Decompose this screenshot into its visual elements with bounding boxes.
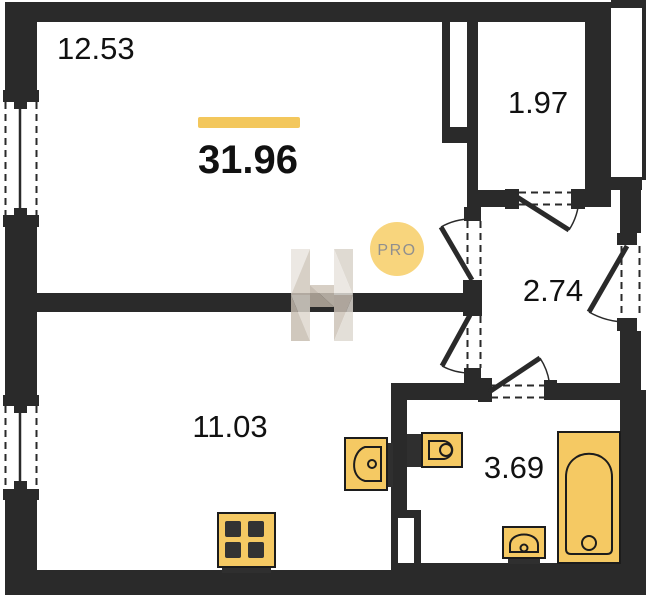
wall-top [5, 2, 611, 22]
wall-entrance-top [620, 187, 641, 233]
stove-burner [225, 542, 241, 558]
window-sill [3, 215, 39, 227]
toilet-icon [407, 433, 462, 467]
total-area-label: 31.96 [198, 138, 298, 182]
wall-corner-shaft-right [414, 518, 421, 568]
stove-icon [218, 513, 275, 573]
stove-burner [248, 542, 264, 558]
wall-shaft-cap [442, 127, 478, 143]
wall-top-edge-strip [611, 0, 646, 8]
wall-shaft-right [467, 22, 478, 207]
wall-corner-shaft-cap [391, 510, 421, 518]
labels: 12.53 31.96 1.97 2.74 11.03 3.69 [57, 31, 583, 485]
wall-left-pier-bottom [5, 500, 37, 595]
door-leaf [442, 315, 470, 366]
wall-bottom-kitchen [37, 570, 391, 595]
toilet-tank [407, 434, 422, 467]
bathtub-body [558, 432, 620, 563]
wall-bath-top-left [406, 383, 489, 400]
total-area-accent-bar [198, 117, 300, 128]
room-area-label-bathroom: 3.69 [484, 450, 544, 485]
wall-corner-shaft-left [391, 518, 398, 568]
wall-closet-right [585, 2, 611, 190]
room-area-label-closet: 1.97 [508, 85, 568, 120]
door-leaf [517, 197, 569, 230]
stove-burner [225, 521, 241, 537]
wall-left-pier-top [5, 2, 37, 92]
wall-bottom-bathroom [391, 563, 646, 595]
door-jamb [617, 233, 637, 245]
washbasin-icon [503, 527, 545, 564]
floor-plan-canvas: PRO 12.53 31.96 1.97 2.74 11.03 3.69 [0, 0, 646, 600]
window-sill [3, 489, 39, 500]
kitchen-sink-icon [345, 438, 393, 490]
wall-bathroom-right [620, 390, 646, 568]
door-jamb [617, 318, 637, 331]
door-leaf [589, 246, 627, 312]
wall-right-edge-strip [642, 8, 646, 180]
door-kitchen [442, 315, 481, 373]
room-area-label-hallway: 2.74 [523, 273, 583, 308]
window-2 [3, 395, 39, 500]
window-1 [3, 90, 39, 227]
wall-divider-horizontal [37, 293, 465, 312]
pro-badge-label: PRO [377, 242, 416, 259]
bathtub-icon [558, 432, 620, 563]
window-stub [14, 481, 27, 490]
pro-badge-icon: PRO [370, 222, 424, 276]
door-living [441, 219, 481, 280]
wall-left-pier-mid [5, 227, 37, 397]
stove-burner [248, 521, 264, 537]
floor-plan: PRO 12.53 31.96 1.97 2.74 11.03 3.69 [0, 0, 646, 600]
door-leaf [489, 358, 540, 392]
wall-bath-left [391, 383, 407, 518]
door-closet [517, 193, 579, 231]
wall-entrance-bottom [620, 331, 641, 390]
wall-hall-left-mid [463, 280, 482, 316]
logo-h-icon [291, 249, 353, 341]
door-bathroom [489, 358, 550, 398]
wall-shaft-left [442, 22, 450, 143]
room-area-label-kitchen: 11.03 [192, 409, 267, 444]
room-area-label-living: 12.53 [57, 31, 135, 66]
wall-bath-top-right [546, 383, 620, 400]
door-entrance [589, 246, 640, 322]
